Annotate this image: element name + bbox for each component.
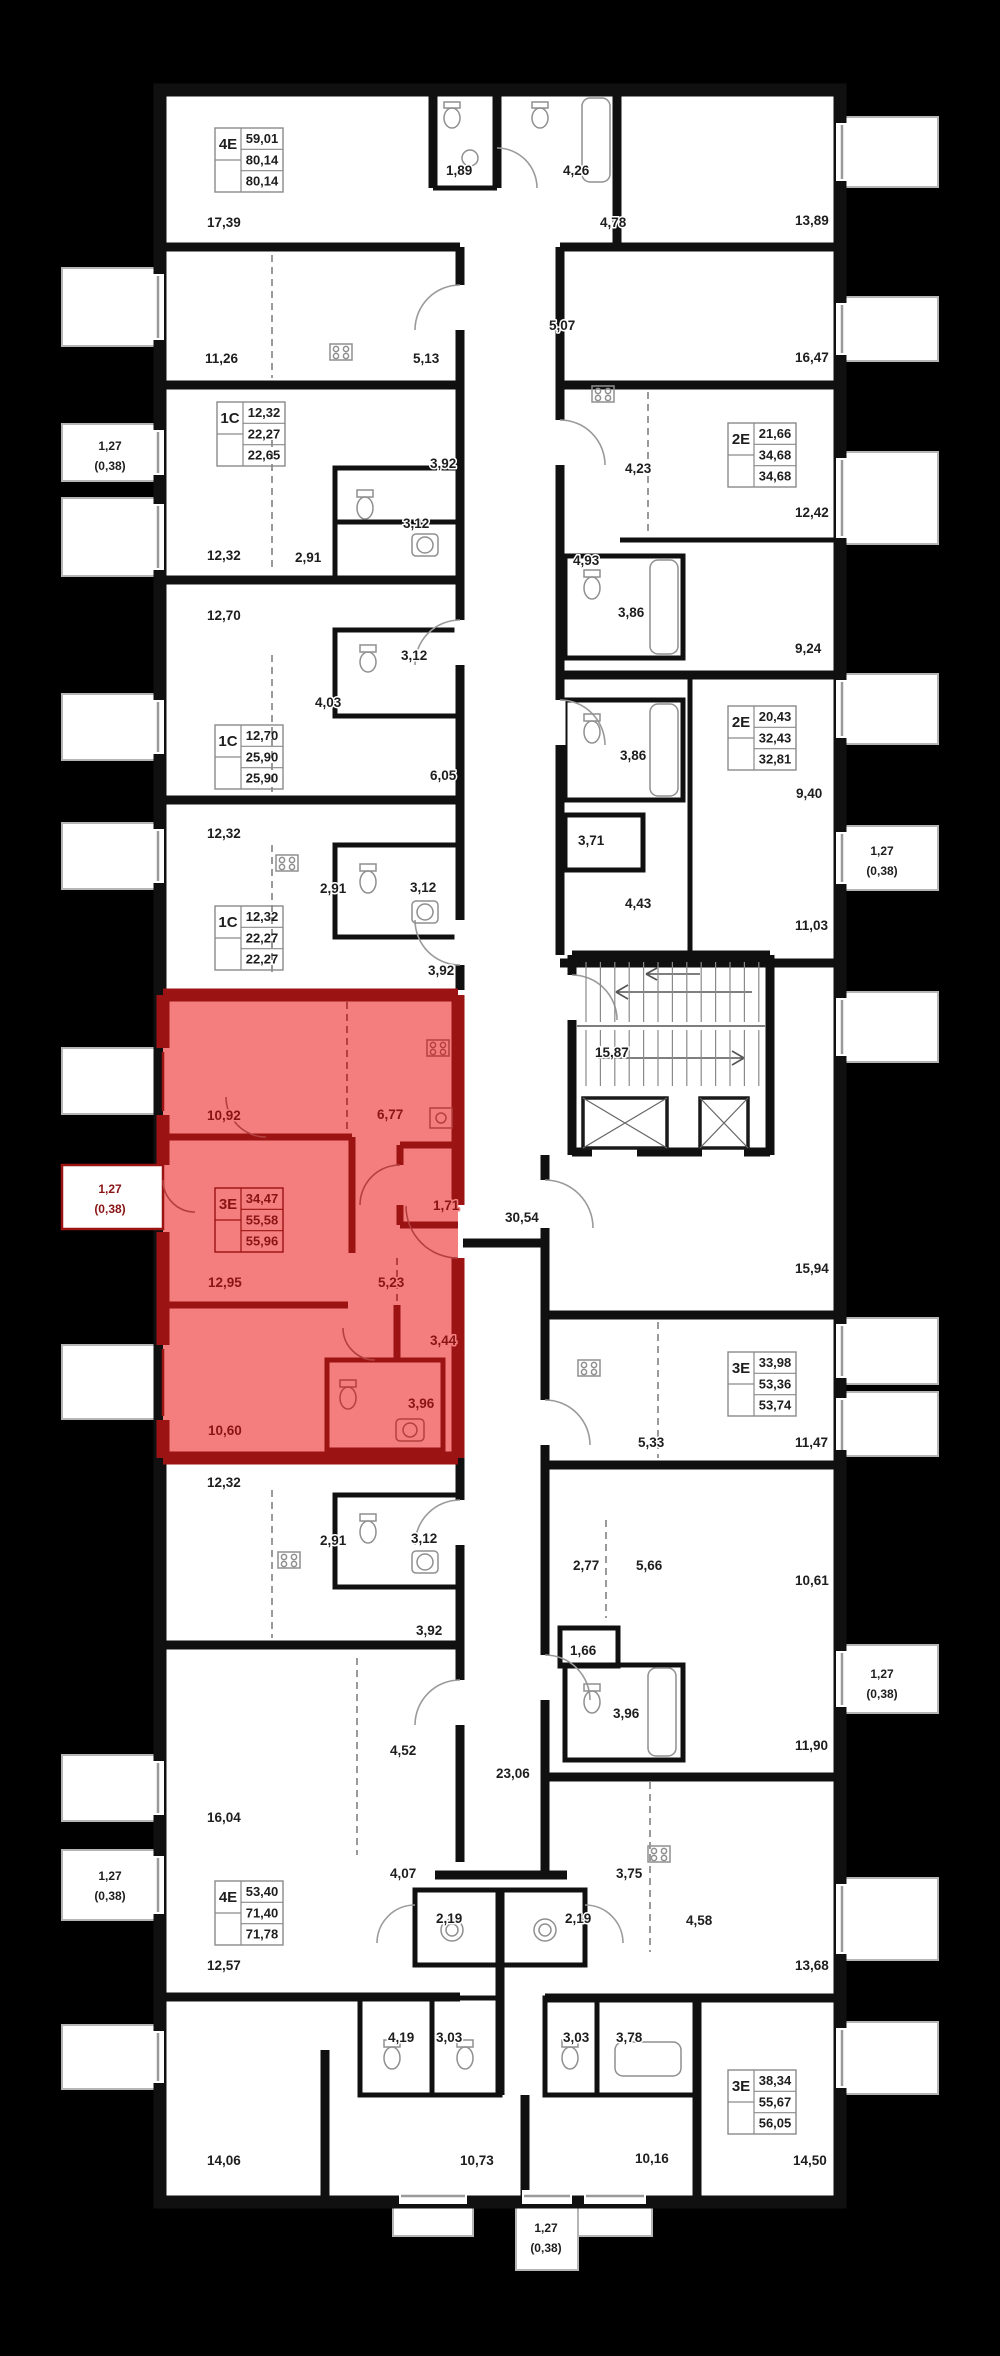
room-area-label: 9,40 [796, 786, 822, 801]
room-area-label-highlighted: 12,95 [208, 1275, 242, 1290]
balcony-area-reduced-value: (0,38) [866, 1687, 897, 1701]
room-area-label: 3,96 [613, 1706, 640, 1721]
unit-area-value: 22,27 [246, 930, 279, 945]
balcony-area-value: 1,27 [98, 1182, 122, 1196]
highlighted-balcony [62, 1165, 163, 1229]
room-area-label: 2,91 [320, 881, 347, 896]
room-area-label: 3,92 [428, 963, 454, 978]
room-area-label: 1,89 [446, 163, 472, 178]
unit-area-value: 34,68 [759, 447, 792, 462]
unit-area-value: 22,27 [248, 426, 281, 441]
room-area-label: 10,16 [635, 2151, 669, 2166]
unit-area-value: 21,66 [759, 426, 792, 441]
room-area-label: 11,26 [205, 351, 239, 366]
unit-area-value: 32,43 [759, 730, 792, 745]
room-area-label-highlighted: 10,60 [208, 1423, 242, 1438]
unit-area-value: 34,47 [246, 1191, 279, 1206]
unit-type-label: 3Е [219, 1196, 237, 1213]
room-area-label: 3,03 [436, 2030, 463, 2045]
unit-area-value: 22,27 [246, 952, 279, 967]
room-area-label: 4,52 [390, 1743, 416, 1758]
room-area-label: 23,06 [496, 1766, 530, 1781]
room-area-label: 2,77 [573, 1558, 599, 1573]
room-area-label: 2,19 [565, 1911, 591, 1926]
unit-type-label: 1С [218, 914, 237, 931]
room-area-label: 16,04 [207, 1810, 241, 1825]
room-area-label-highlighted: 6,77 [377, 1107, 403, 1122]
unit-area-value: 53,40 [246, 1884, 279, 1899]
room-area-label: 1,66 [570, 1643, 597, 1658]
unit-type-label: 2Е [732, 714, 750, 731]
balcony-area-value: 1,27 [870, 844, 894, 858]
room-area-label: 13,89 [795, 213, 829, 228]
unit-type-label: 1С [220, 410, 239, 427]
unit-area-value: 53,74 [759, 1398, 792, 1413]
room-area-label: 10,61 [795, 1573, 829, 1588]
room-area-label: 3,12 [403, 516, 429, 531]
unit-area-value: 32,81 [759, 752, 792, 767]
unit-area-value: 55,67 [759, 2094, 792, 2109]
unit-area-value: 59,01 [246, 131, 279, 146]
floor-plan-svg: 17,391,894,264,7813,8911,265,135,0716,47… [0, 0, 1000, 2356]
room-area-label: 2,19 [436, 1911, 462, 1926]
unit-type-label: 1С [218, 733, 237, 750]
unit-area-value: 12,70 [246, 728, 279, 743]
room-area-label: 15,87 [595, 1045, 629, 1060]
balcony-area-value: 1,27 [98, 1869, 122, 1883]
room-area-label: 3,03 [563, 2030, 590, 2045]
balcony-area-value: 1,27 [98, 439, 122, 453]
room-area-label: 3,92 [430, 456, 456, 471]
room-area-label: 12,32 [207, 1475, 241, 1490]
room-area-label: 12,32 [207, 548, 241, 563]
room-area-label: 3,12 [410, 880, 436, 895]
unit-area-value: 33,98 [759, 1355, 792, 1370]
room-area-label: 11,47 [795, 1435, 828, 1450]
unit-area-value: 71,40 [246, 1905, 279, 1920]
room-area-label: 5,66 [636, 1558, 663, 1573]
unit-area-value: 53,36 [759, 1376, 792, 1391]
room-area-label: 4,43 [625, 896, 652, 911]
room-area-label: 6,05 [430, 768, 457, 783]
room-area-label: 12,70 [207, 608, 241, 623]
room-area-label-highlighted: 5,23 [378, 1275, 405, 1290]
room-area-label: 13,68 [795, 1958, 829, 1973]
room-area-label: 3,86 [620, 748, 647, 763]
unit-area-value: 80,14 [246, 152, 279, 167]
room-area-label: 4,07 [390, 1866, 416, 1881]
balcony-area-reduced-value: (0,38) [530, 2241, 561, 2255]
room-area-label: 16,47 [795, 350, 829, 365]
room-area-label: 2,91 [295, 550, 322, 565]
room-area-label: 5,07 [549, 318, 575, 333]
unit-area-value: 34,68 [759, 469, 792, 484]
unit-area-value: 12,32 [248, 405, 281, 420]
room-area-label: 4,93 [573, 553, 600, 568]
unit-area-value: 38,34 [759, 2073, 792, 2088]
room-area-label-highlighted: 10,92 [207, 1108, 241, 1123]
room-area-label: 4,03 [315, 695, 342, 710]
room-area-label: 3,12 [411, 1531, 437, 1546]
unit-area-value: 71,78 [246, 1927, 279, 1942]
room-area-label-highlighted: 3,96 [408, 1396, 435, 1411]
balcony-area-reduced-value: (0,38) [866, 864, 897, 878]
room-area-label-highlighted: 1,71 [433, 1198, 460, 1213]
unit-area-value: 12,32 [246, 909, 279, 924]
balcony-area-reduced-value: (0,38) [94, 459, 125, 473]
unit-type-label: 3Е [732, 1360, 750, 1377]
floor-plan-stage: 17,391,894,264,7813,8911,265,135,0716,47… [0, 0, 1000, 2356]
room-area-label: 3,75 [616, 1866, 643, 1881]
room-area-label: 12,57 [207, 1958, 241, 1973]
room-area-label: 12,32 [207, 826, 241, 841]
unit-type-label: 4Е [219, 1889, 237, 1906]
room-area-label: 4,19 [388, 2030, 414, 2045]
unit-area-value: 22,65 [248, 448, 281, 463]
unit-area-value: 55,58 [246, 1212, 279, 1227]
room-area-label: 2,91 [320, 1533, 347, 1548]
room-area-label: 11,90 [795, 1738, 828, 1753]
unit-area-value: 55,96 [246, 1234, 279, 1249]
room-area-label: 3,86 [618, 605, 645, 620]
unit-type-label: 3Е [732, 2078, 750, 2095]
room-area-label: 11,03 [795, 918, 829, 933]
room-area-label: 3,92 [416, 1623, 442, 1638]
balcony-area-reduced-value: (0,38) [94, 1889, 125, 1903]
room-area-label: 30,54 [505, 1210, 539, 1225]
room-area-label: 4,58 [686, 1913, 713, 1928]
unit-type-label: 2Е [732, 431, 750, 448]
room-area-label: 4,78 [600, 215, 627, 230]
room-area-label: 17,39 [207, 215, 241, 230]
unit-area-value: 20,43 [759, 709, 792, 724]
room-area-label: 5,13 [413, 351, 440, 366]
room-area-label: 5,33 [638, 1435, 665, 1450]
room-area-label: 4,23 [625, 461, 652, 476]
room-area-label: 9,24 [795, 641, 822, 656]
unit-area-value: 80,14 [246, 174, 279, 189]
room-area-label: 12,42 [795, 505, 829, 520]
balcony-area-value: 1,27 [534, 2221, 558, 2235]
unit-area-value: 25,90 [246, 771, 279, 786]
unit-area-value: 25,90 [246, 749, 279, 764]
room-area-label: 3,12 [401, 648, 427, 663]
unit-area-value: 56,05 [759, 2116, 792, 2131]
room-area-label: 14,50 [793, 2153, 827, 2168]
unit-type-label: 4Е [219, 136, 237, 153]
balcony-area-value: 1,27 [870, 1667, 894, 1681]
room-area-label: 3,71 [578, 833, 605, 848]
balcony-area-reduced-value: (0,38) [94, 1202, 125, 1216]
room-area-label: 4,26 [563, 163, 590, 178]
room-area-label: 10,73 [460, 2153, 494, 2168]
room-area-label: 14,06 [207, 2153, 241, 2168]
room-area-label: 15,94 [795, 1261, 829, 1276]
room-area-label: 3,78 [616, 2030, 643, 2045]
room-area-label-highlighted: 3,44 [430, 1333, 457, 1348]
